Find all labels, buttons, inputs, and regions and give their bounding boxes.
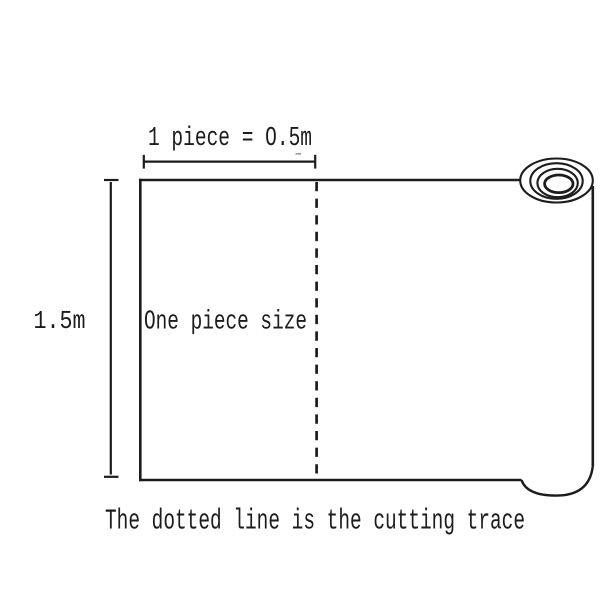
svg-text:1 piece = O.5m: 1 piece = O.5m bbox=[148, 123, 312, 153]
svg-text:One piece size: One piece size bbox=[144, 307, 307, 337]
svg-text:1.5m: 1.5m bbox=[34, 306, 86, 336]
svg-text:The dotted line is the cutting: The dotted line is the cutting trace bbox=[105, 505, 525, 538]
